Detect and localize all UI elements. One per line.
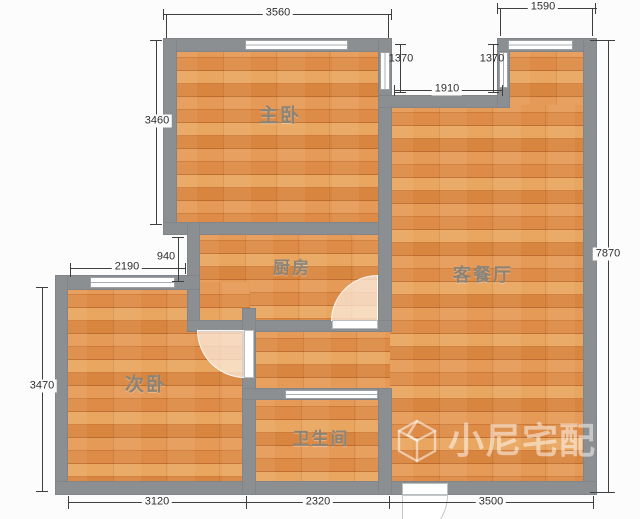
dim-label-3460: 3460 xyxy=(142,115,172,128)
dim-ext-line xyxy=(166,14,167,38)
dim-label-2320: 2320 xyxy=(303,496,333,509)
dim-label-1370-right: 1370 xyxy=(477,53,507,66)
master-bedroom-window xyxy=(245,40,348,50)
dim-tick xyxy=(389,496,390,509)
dim-label-3470: 3470 xyxy=(27,380,57,393)
living-dining-floor xyxy=(386,100,591,488)
master-bedroom-floor xyxy=(170,45,385,230)
dim-label-3500: 3500 xyxy=(476,496,506,509)
dim-tick xyxy=(502,85,503,96)
dim-tick xyxy=(488,44,499,45)
floorplan-canvas: 主卧 厨房 客餐厅 次卧 卫生间 3560 1590 1370 1370 191… xyxy=(0,0,640,519)
dim-tick xyxy=(172,237,184,238)
dim-tick xyxy=(394,85,395,96)
dim-tick xyxy=(391,9,392,20)
room-label-bathroom: 卫生间 xyxy=(293,425,350,450)
dim-tick xyxy=(395,92,406,93)
dim-line-1370-left xyxy=(400,44,401,93)
dim-tick xyxy=(150,224,162,225)
dim-label-940: 940 xyxy=(154,251,178,264)
room-label-living-dining: 客餐厅 xyxy=(453,261,513,287)
dim-tick xyxy=(185,263,186,274)
dim-line-7870 xyxy=(608,40,609,493)
living-top-right-floor xyxy=(503,45,591,105)
dim-label-1370-left: 1370 xyxy=(386,53,416,66)
wall-bottom-exterior xyxy=(55,481,597,495)
dim-label-2190: 2190 xyxy=(112,261,142,274)
dim-label-7870: 7870 xyxy=(593,248,623,261)
dim-label-3120: 3120 xyxy=(142,496,172,509)
dim-ext-line xyxy=(388,14,389,38)
room-label-second-bedroom: 次卧 xyxy=(125,370,167,397)
dim-tick xyxy=(36,287,48,288)
wall-bathroom-right xyxy=(378,388,392,495)
second-bedroom-door-leaf xyxy=(244,330,254,378)
dim-tick xyxy=(488,92,499,93)
room-label-kitchen: 厨房 xyxy=(273,254,311,279)
topright-window xyxy=(508,40,573,50)
dim-tick xyxy=(163,9,164,20)
dim-tick xyxy=(593,496,594,509)
dim-ext-line xyxy=(70,268,71,277)
bathroom-sliding-opening xyxy=(285,390,378,399)
hallway-floor xyxy=(250,326,390,392)
dim-tick xyxy=(595,3,596,14)
second-bedroom-window xyxy=(90,277,175,288)
dim-tick xyxy=(497,3,498,14)
wall-notch-bottom xyxy=(378,95,510,108)
dim-tick xyxy=(172,281,184,282)
dim-ext-line xyxy=(590,40,604,41)
dim-label-1910: 1910 xyxy=(432,83,462,96)
entrance-door-leaf xyxy=(402,483,448,495)
wall-right-exterior xyxy=(583,38,597,495)
dim-label-3560: 3560 xyxy=(263,7,293,20)
dim-ext-line xyxy=(500,8,501,36)
dim-line-3460 xyxy=(156,40,157,225)
dim-line-1370-right xyxy=(493,44,494,93)
dim-ext-line xyxy=(590,492,604,493)
dim-tick xyxy=(246,496,247,509)
dim-ext-line xyxy=(592,8,593,36)
dim-tick xyxy=(395,44,406,45)
dim-tick xyxy=(150,40,162,41)
room-label-master-bedroom: 主卧 xyxy=(259,101,301,128)
dim-label-1590: 1590 xyxy=(528,1,558,14)
kitchen-door-leaf xyxy=(332,320,378,329)
wall-master-left xyxy=(163,38,177,235)
dim-tick xyxy=(68,496,69,509)
dim-tick xyxy=(36,491,48,492)
entrance-door-swing-arc xyxy=(402,495,448,519)
